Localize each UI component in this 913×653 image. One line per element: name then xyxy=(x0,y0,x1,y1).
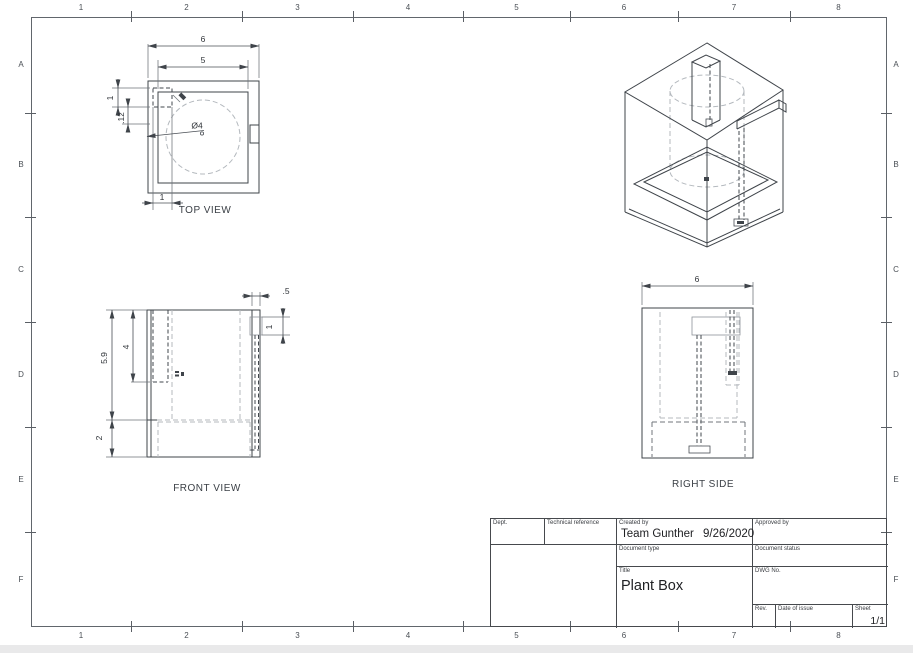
right-side-view-drawing: 6 xyxy=(600,268,800,495)
dim-right-overall-width: 6 xyxy=(695,274,700,284)
drawing-sheet: 1122334455667788AABBCCDDEEFF 6 5 1 xyxy=(0,0,913,653)
zone-column-label-top: 1 xyxy=(73,2,89,14)
top-view-dimensions: 6 5 1 .12 1 Ø4 xyxy=(105,34,259,203)
zone-column-label-top: 4 xyxy=(400,2,416,14)
zone-row-label-right: C xyxy=(888,264,904,276)
created-by-label: Created by xyxy=(619,520,648,526)
zone-column-label-top: 6 xyxy=(616,2,632,14)
title-block-technical-reference-cell: Technical reference xyxy=(545,519,617,545)
zone-row-label-right: F xyxy=(888,574,904,586)
zone-tick xyxy=(570,11,571,22)
right-view-extension-lines xyxy=(642,282,753,305)
zone-tick xyxy=(881,322,892,323)
dim-tab-width: 1 xyxy=(160,192,165,202)
zone-column-label-bottom: 4 xyxy=(400,630,416,642)
zone-tick xyxy=(131,621,132,632)
sheet-label: Sheet xyxy=(855,606,871,612)
front-view-extension-lines xyxy=(106,292,290,457)
iso-top-slot xyxy=(692,55,720,127)
title-block-document-type-cell: Document type xyxy=(617,545,753,567)
dim-wall-offset: .12 xyxy=(116,112,126,124)
title-block-date-of-issue-cell: Date of issue xyxy=(776,605,853,628)
zone-row-label-right: A xyxy=(888,59,904,71)
zone-column-label-bottom: 5 xyxy=(509,630,525,642)
zone-tick xyxy=(25,322,36,323)
zone-row-label-left: D xyxy=(13,369,29,381)
zone-column-label-bottom: 7 xyxy=(726,630,742,642)
zone-tick xyxy=(881,113,892,114)
document-status-label: Document status xyxy=(755,546,800,552)
zone-column-label-bottom: 8 xyxy=(831,630,847,642)
zone-row-label-left: B xyxy=(13,159,29,171)
isometric-view-drawing xyxy=(608,28,798,258)
dim-wall-thickness: .5 xyxy=(282,286,289,296)
zone-tick xyxy=(463,11,464,22)
top-view-label: TOP VIEW xyxy=(160,205,250,216)
zone-tick xyxy=(881,217,892,218)
title-block-dept-cell: Dept. xyxy=(491,519,545,545)
top-view-outline xyxy=(148,81,259,193)
top-view-drawing: 6 5 1 .12 1 Ø4 xyxy=(95,30,310,225)
zone-row-label-left: E xyxy=(13,474,29,486)
zone-tick xyxy=(353,11,354,22)
sheet-value: 1/1 xyxy=(870,615,885,627)
dwg-no-label: DWG No. xyxy=(755,568,781,574)
iso-box-outline xyxy=(625,43,783,247)
zone-tick xyxy=(131,11,132,22)
zone-column-label-bottom: 1 xyxy=(73,630,89,642)
zone-tick xyxy=(25,113,36,114)
title-block-dwg-no-cell: DWG No. xyxy=(753,567,888,605)
title-block-sheet-cell: Sheet 1/1 xyxy=(853,605,888,628)
dim-inner-width: 5 xyxy=(201,55,206,65)
dim-overall-width: 6 xyxy=(201,34,206,44)
front-view-label: FRONT VIEW xyxy=(157,483,257,494)
zone-row-label-right: D xyxy=(888,369,904,381)
zone-row-label-right: B xyxy=(888,159,904,171)
zone-tick xyxy=(678,11,679,22)
zone-tick xyxy=(25,217,36,218)
approved-by-label: Approved by xyxy=(755,520,789,526)
document-type-label: Document type xyxy=(619,546,659,552)
zone-tick xyxy=(242,11,243,22)
dim-tab-height: 1 xyxy=(105,95,115,100)
title-block-approved-by-cell: Approved by xyxy=(753,519,888,545)
zone-column-label-top: 3 xyxy=(290,2,306,14)
title-block-title-cell: Title Plant Box xyxy=(617,567,753,628)
zone-tick xyxy=(790,11,791,22)
dim-tube-depth: 4 xyxy=(121,344,131,349)
dim-base-height: 2 xyxy=(94,435,104,440)
technical-reference-label: Technical reference xyxy=(547,520,599,526)
dim-body-height: 5.9 xyxy=(99,352,109,364)
title-block-empty-cell xyxy=(491,545,617,628)
rev-label: Rev. xyxy=(755,606,767,612)
zone-column-label-top: 5 xyxy=(509,2,525,14)
title-block-document-status-cell: Document status xyxy=(753,545,888,567)
zone-column-label-top: 2 xyxy=(179,2,195,14)
zone-row-label-left: F xyxy=(13,574,29,586)
zone-tick xyxy=(25,532,36,533)
created-by-value: Team Gunther xyxy=(621,528,694,540)
front-view-drawing: .5 1 4 5.9 2 xyxy=(90,283,300,498)
front-view-outline xyxy=(147,310,262,457)
zone-row-label-right: E xyxy=(888,474,904,486)
title-block-rev-cell: Rev. xyxy=(753,605,776,628)
right-side-view-label: RIGHT SIDE xyxy=(653,479,753,490)
zone-tick xyxy=(881,427,892,428)
title-label: Title xyxy=(619,568,630,574)
zone-column-label-bottom: 6 xyxy=(616,630,632,642)
zone-tick xyxy=(25,427,36,428)
dim-hole-diameter: Ø4 xyxy=(191,121,203,131)
zone-column-label-bottom: 3 xyxy=(290,630,306,642)
page-bottom-strip xyxy=(0,645,913,653)
date-of-issue-label: Date of issue xyxy=(778,606,813,612)
dept-label: Dept. xyxy=(493,520,507,526)
drawing-title-value: Plant Box xyxy=(621,578,683,594)
right-view-hidden-lines xyxy=(652,310,745,457)
zone-column-label-bottom: 2 xyxy=(179,630,195,642)
zone-column-label-top: 8 xyxy=(831,2,847,14)
front-view-hidden-lines xyxy=(153,310,259,457)
zone-row-label-left: C xyxy=(13,264,29,276)
zone-tick xyxy=(463,621,464,632)
zone-tick xyxy=(242,621,243,632)
zone-column-label-top: 7 xyxy=(726,2,742,14)
title-block-created-by-cell: Created by Team Gunther 9/26/2020 xyxy=(617,519,753,545)
created-date-value: 9/26/2020 xyxy=(703,528,754,540)
title-block: Dept. Technical reference Created by Tea… xyxy=(490,518,887,627)
zone-tick xyxy=(353,621,354,632)
top-view-extension-lines xyxy=(112,44,259,210)
right-view-dimensions: 6 xyxy=(642,274,753,286)
zone-row-label-left: A xyxy=(13,59,29,71)
dim-notch-height: 1 xyxy=(264,324,274,329)
